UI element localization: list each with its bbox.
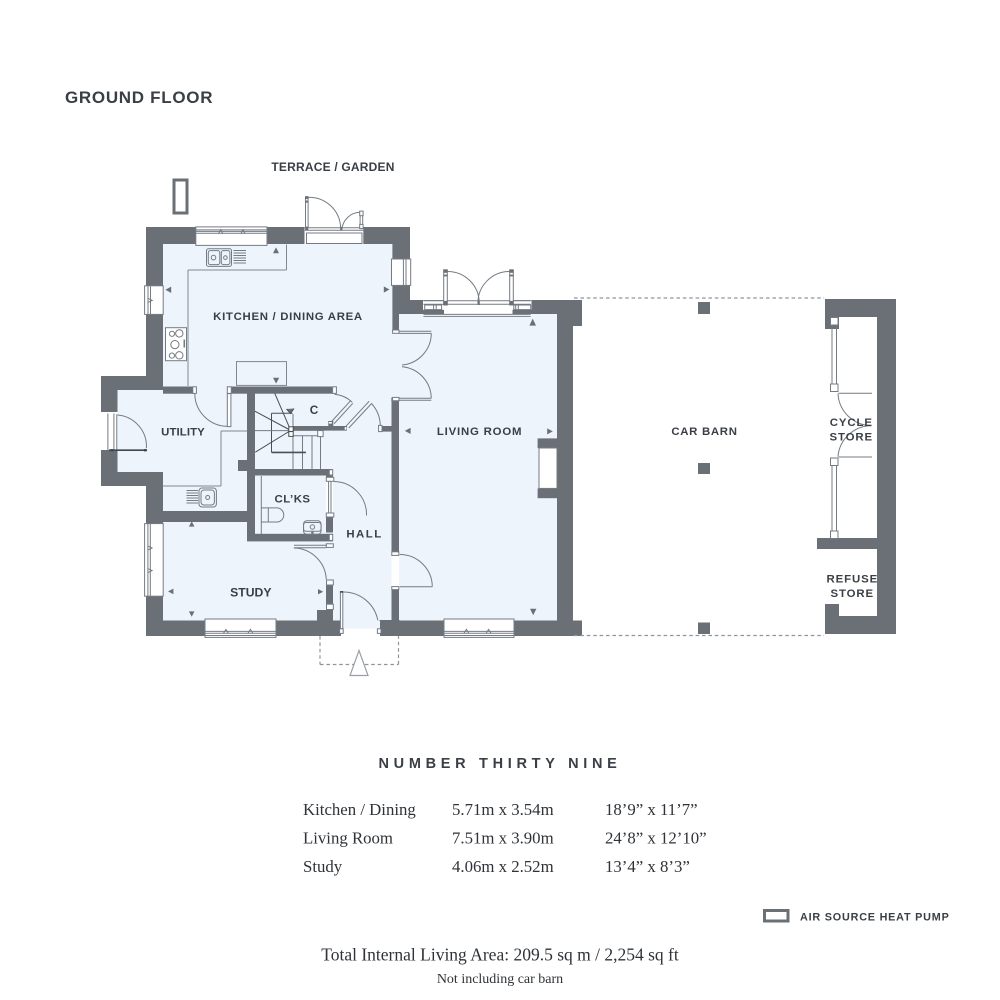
svg-text:C: C — [310, 403, 319, 417]
svg-text:LIVING ROOM: LIVING ROOM — [437, 426, 522, 438]
svg-text:5.71m x 3.54m: 5.71m x 3.54m — [452, 800, 554, 819]
svg-text:24’8” x 12’10”: 24’8” x 12’10” — [605, 829, 707, 848]
svg-text:KITCHEN / DINING AREA: KITCHEN / DINING AREA — [213, 311, 363, 323]
svg-text:Total Internal Living Area: 20: Total Internal Living Area: 209.5 sq m /… — [321, 945, 679, 965]
svg-text:Kitchen / Dining: Kitchen / Dining — [303, 800, 416, 819]
svg-text:AIR SOURCE HEAT PUMP: AIR SOURCE HEAT PUMP — [800, 912, 950, 924]
svg-text:HALL: HALL — [346, 529, 382, 541]
svg-text:REFUSE: REFUSE — [826, 574, 878, 586]
svg-text:TERRACE / GARDEN: TERRACE / GARDEN — [271, 160, 394, 174]
svg-text:18’9” x 11’7”: 18’9” x 11’7” — [605, 800, 698, 819]
svg-text:Study: Study — [303, 857, 343, 876]
svg-text:7.51m x 3.90m: 7.51m x 3.90m — [452, 829, 554, 848]
svg-text:CAR BARN: CAR BARN — [671, 426, 737, 438]
svg-text:13’4” x 8’3”: 13’4” x 8’3” — [605, 857, 690, 876]
svg-text:Not including car barn: Not including car barn — [437, 972, 563, 987]
svg-text:CL’KS: CL’KS — [274, 494, 310, 506]
svg-text:NUMBER THIRTY NINE: NUMBER THIRTY NINE — [378, 756, 621, 772]
svg-text:UTILITY: UTILITY — [161, 427, 205, 439]
svg-text:STORE: STORE — [831, 588, 875, 600]
svg-text:Living Room: Living Room — [303, 829, 393, 848]
svg-text:4.06m x 2.52m: 4.06m x 2.52m — [452, 857, 554, 876]
svg-text:STORE: STORE — [830, 432, 874, 444]
svg-text:STUDY: STUDY — [230, 585, 271, 599]
svg-text:CYCLE: CYCLE — [830, 417, 873, 429]
svg-text:GROUND FLOOR: GROUND FLOOR — [65, 88, 213, 107]
